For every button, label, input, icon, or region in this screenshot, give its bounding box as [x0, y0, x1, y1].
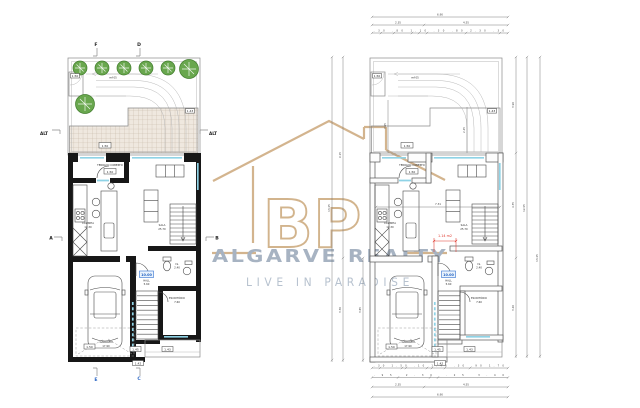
room-label-hall: HALL [143, 279, 150, 283]
section-marker-f: F [94, 42, 97, 48]
room-label-hall: HALL [445, 279, 452, 283]
section-marker-c: C [137, 376, 141, 382]
dim-bottom-chain: .30 1.50 .10 1.40 .30 .90 1.70 [374, 363, 504, 367]
section-marker-a: A [49, 236, 53, 242]
dim-bottom-chain2: .95 2.30 .25 3.40 [374, 373, 504, 377]
garden-trees [73, 60, 199, 114]
room-area-wc: 2.40 [476, 266, 482, 270]
dim-top-left: 2.35 [395, 20, 401, 24]
level-tile-edge: 1.43 [187, 109, 194, 113]
dim-right-outer: 13.45 [535, 254, 539, 262]
dim-left-lower: 3.30 [338, 307, 342, 313]
room-area-hall: 5.60 [446, 282, 452, 286]
dim-left-upper: 9.15 [338, 152, 342, 158]
room-label-terrace: TERRAÇO COBERTO [399, 163, 425, 167]
level-porch-b: 1.43 [466, 348, 473, 352]
driveway-note: ref 05 [109, 76, 117, 80]
room-label-garage: GARAGEM [401, 340, 414, 344]
room-area-garage: 17.90 [404, 344, 412, 348]
dim-bottom-left: 2.35 [395, 382, 401, 386]
room-label-living: SALA [159, 223, 166, 227]
level-badge: 10.00 [443, 273, 454, 277]
level-garage: 1.50 [86, 345, 93, 349]
level-porch-a: 1.45 [132, 348, 139, 352]
dim-right-c: 3.40 [511, 305, 515, 311]
driveway-note: ref 05 [411, 76, 419, 80]
level-tiles: 1.50 [102, 144, 109, 148]
level-badge: 10.00 [141, 273, 152, 277]
section-marker-d: D [137, 42, 141, 48]
level-tile-edge: 1.43 [489, 109, 496, 113]
dim-bottom-total: 6.90 [437, 392, 443, 396]
dim-right-b: 4.35 [511, 202, 515, 208]
room-label-wc: I.S. [175, 262, 179, 266]
room-area-hall: 5.60 [144, 282, 150, 286]
level-porch-a: 1.45 [434, 348, 441, 352]
level-garage: 1.50 [388, 345, 395, 349]
dim-right-total: 12.95 [522, 204, 526, 212]
dim-bottom-right: 4.55 [463, 382, 469, 386]
section-marker-e: E [94, 377, 97, 383]
level-gate: 1.50 [374, 74, 381, 78]
left-floor-plan: TERRAÇO COBERTO 1.50 1.50 ref 05 1.50 1.… [40, 42, 219, 383]
room-label-kitchen: COZINHA [82, 221, 94, 225]
section-marker-b: B [215, 236, 219, 242]
patio-tiles [70, 108, 199, 153]
alt-marker-left: ALT [40, 131, 48, 136]
room-label-office: ESCRITÓRIO [471, 295, 487, 300]
room-area-living: 25.70 [158, 227, 166, 231]
tagline: LIVE IN PARADISE [246, 275, 414, 289]
level-entry-step: 1.42 [135, 362, 142, 366]
dim-top-right: 4.55 [463, 20, 469, 24]
level-porch-b: 1.43 [164, 348, 171, 352]
room-area-living: 25.70 [460, 227, 468, 231]
room-label-terrace: TERRAÇO COBERTO [97, 163, 123, 167]
room-area-office: 7.60 [476, 300, 482, 304]
dim-top-chain: .30 .80 1.10 .30 .80 2.30 .30 [374, 28, 504, 32]
room-label-office: ESCRITÓRIO [169, 295, 185, 300]
alt-marker-right: ALT [209, 131, 217, 136]
room-area-kitchen: 12.30 [386, 225, 394, 229]
level-gate: 1.50 [72, 74, 79, 78]
dim-inner-h2: 2.45 [462, 127, 466, 133]
level-terrace: 1.50 [409, 170, 416, 174]
plan-drawing: BP ALGARVE REALTY LIVE IN PARADISE TERRA… [0, 0, 640, 408]
floorplan-sheet: BP ALGARVE REALTY LIVE IN PARADISE TERRA… [0, 0, 640, 408]
level-tiles: 1.50 [404, 144, 411, 148]
room-label-wc: I.S. [477, 262, 481, 266]
room-label-living: SALA [461, 223, 468, 227]
room-label-garage: GARAGEM [99, 340, 112, 344]
room-label-kitchen: COZINHA [384, 221, 396, 225]
room-area-kitchen: 12.30 [84, 225, 92, 229]
dim-left-inner: 3.65 [358, 307, 362, 313]
level-terrace: 1.50 [107, 170, 114, 174]
dim-top-total: 6.90 [437, 12, 443, 16]
red-dimension-value: 1.14 m2 [438, 234, 452, 238]
room-area-office: 7.60 [174, 300, 180, 304]
dim-left-total: 13.45 [327, 204, 331, 212]
dim-right-a: 3.90 [511, 102, 515, 108]
room-area-wc: 2.40 [174, 266, 180, 270]
dim-inner-width: 7.31 [435, 202, 441, 206]
dim-inner-h1: 3.95 [383, 123, 387, 129]
room-area-garage: 17.90 [102, 344, 110, 348]
